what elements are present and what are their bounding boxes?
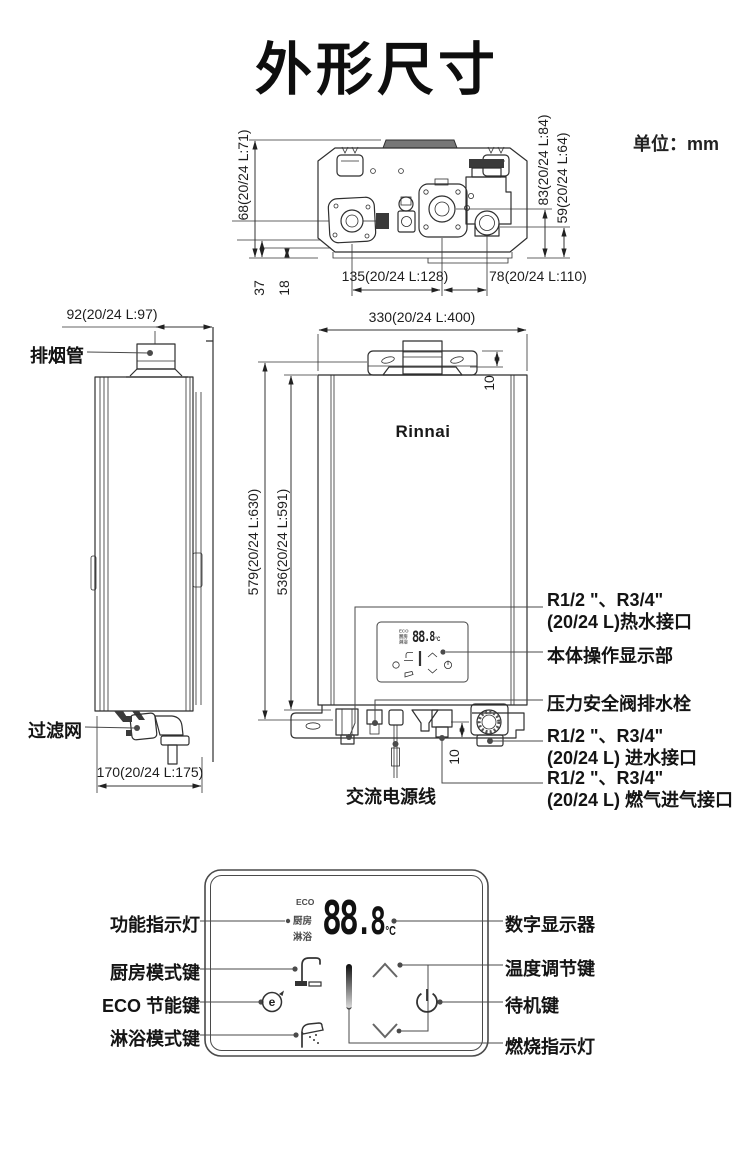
filter-assembly-side bbox=[126, 713, 189, 764]
dim-front-10-bracket: 10 bbox=[481, 368, 497, 398]
dim-top-37: 37 bbox=[251, 270, 267, 306]
dim-top-135: 135(20/24 L:128) bbox=[335, 268, 455, 284]
filter-label: 过滤网 bbox=[28, 717, 82, 743]
digital-display-label: 数字显示器 bbox=[505, 911, 595, 937]
side-view-drawing bbox=[62, 327, 213, 793]
mini-indicator-labels: ECO 厨房 淋浴 bbox=[399, 629, 409, 645]
unit-note: 单位：mm bbox=[633, 130, 719, 156]
standby-key-label: 待机键 bbox=[505, 992, 559, 1018]
eco-key-label: ECO 节能键 bbox=[55, 992, 200, 1018]
dim-front-579: 579(20/24 L:630) bbox=[245, 487, 261, 597]
kitchen-indicator-dot bbox=[286, 919, 290, 923]
dim-top-83: 83(20/24 L:84) bbox=[535, 110, 551, 210]
mounting-clip-left bbox=[337, 147, 363, 176]
dim-side-170: 170(20/24 L:175) bbox=[95, 764, 205, 780]
kitchen-indicator-label: 厨房 bbox=[293, 913, 312, 927]
gas-inlet-callout-line2: (20/24 L) 燃气进气接口 bbox=[547, 786, 733, 812]
mounting-bracket-front bbox=[368, 351, 477, 375]
dim-front-10-bottom: 10 bbox=[446, 742, 462, 772]
dim-top-78: 78(20/24 L:110) bbox=[489, 268, 609, 284]
dim-side-92: 92(20/24 L:97) bbox=[57, 306, 167, 322]
dim-top-18: 18 bbox=[276, 270, 292, 306]
flue-pipe-label: 排烟管 bbox=[30, 342, 84, 368]
eco-icon-glyph: e bbox=[265, 995, 279, 1009]
shower-mode-key-label: 淋浴模式键 bbox=[55, 1025, 200, 1051]
shower-indicator-label: 淋浴 bbox=[293, 929, 312, 943]
page-title: 外形尺寸 bbox=[255, 24, 499, 106]
hot-water-fitting-top bbox=[328, 197, 389, 243]
brand-logo: Rinnai bbox=[373, 422, 473, 442]
kitchen-mode-key-label: 厨房模式键 bbox=[55, 959, 200, 985]
digital-display: 88.8°C bbox=[322, 898, 396, 938]
dim-top-68: 68(20/24 L:71) bbox=[235, 125, 251, 225]
dim-top-59: 59(20/24 L:64) bbox=[554, 128, 570, 228]
flue-pipe-side bbox=[126, 344, 188, 377]
temp-adjust-key-label: 温度调节键 bbox=[505, 955, 595, 981]
flue-pipe-front bbox=[403, 341, 442, 374]
operation-panel-callout: 本体操作显示部 bbox=[547, 642, 673, 668]
relief-valve-callout: 压力安全阀排水栓 bbox=[547, 690, 691, 716]
function-indicator-label: 功能指示灯 bbox=[55, 911, 200, 937]
burner-indicator-label: 燃烧指示灯 bbox=[505, 1033, 595, 1059]
dim-front-330: 330(20/24 L:400) bbox=[362, 309, 482, 325]
center-fitting-top bbox=[398, 197, 415, 232]
power-cord-label: 交流电源线 bbox=[336, 783, 446, 809]
mini-digital-display: 88.8°C bbox=[412, 630, 440, 644]
dimension-diagram-page: .ol{stroke:#2f2f2f;stroke-width:1.2;fill… bbox=[0, 0, 750, 1151]
hot-water-callout-line2: (20/24 L)热水接口 bbox=[547, 608, 692, 634]
dim-front-536: 536(20/24 L:591) bbox=[274, 487, 290, 597]
gas-valve-assembly-top bbox=[464, 159, 511, 236]
front-view-drawing bbox=[258, 330, 543, 783]
burner-indicator-bar bbox=[346, 964, 352, 1008]
eco-indicator-label: ECO bbox=[296, 897, 314, 907]
water-inlet-fitting-top bbox=[419, 179, 467, 237]
